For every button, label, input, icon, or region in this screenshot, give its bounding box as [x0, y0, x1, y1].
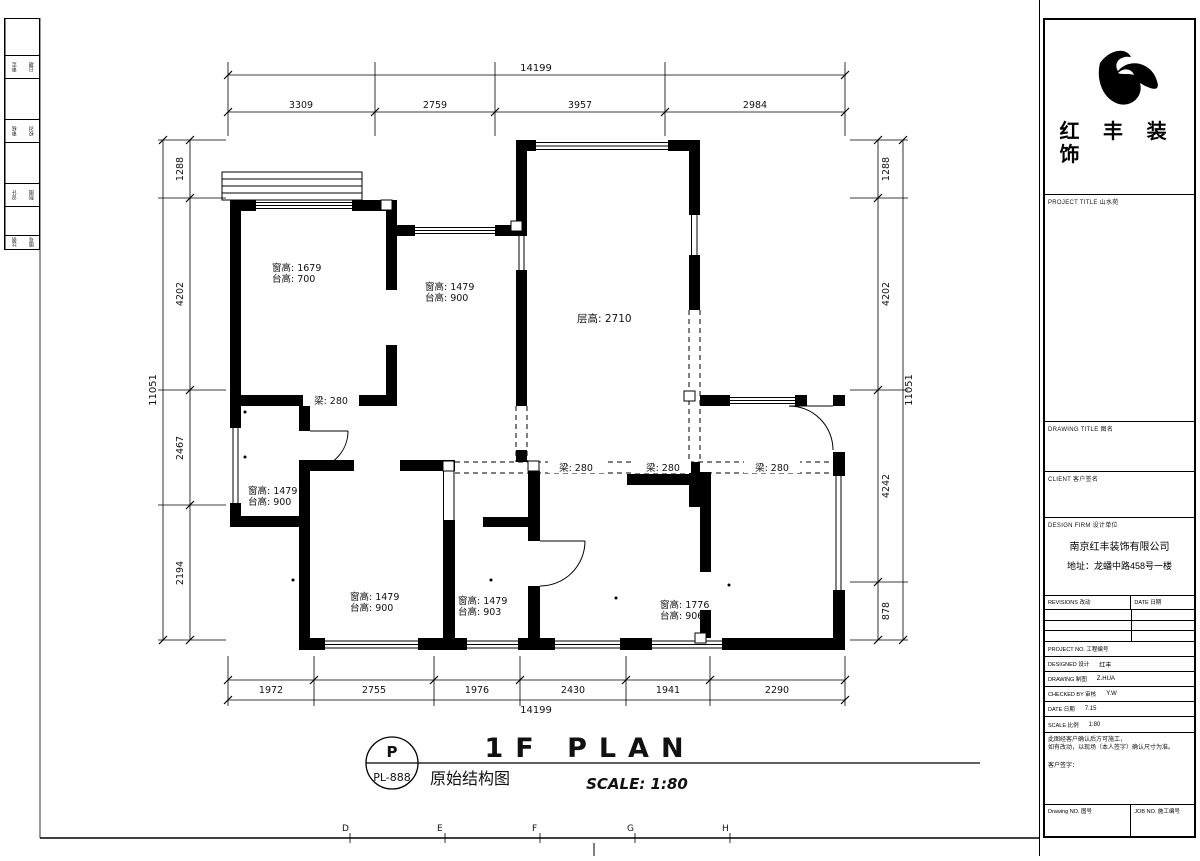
revision-row	[1045, 621, 1194, 632]
info-label: CHECKED BY 审核	[1045, 690, 1096, 698]
dim-bottom-seg: 2755	[362, 685, 386, 696]
note-line: 如有改动，以现场（本人签字）确认尺寸为准。	[1048, 744, 1191, 752]
logo-bird-icon	[1074, 47, 1166, 121]
notes-section: 此图经客户确认后方可施工， 如有改动，以现场（本人签字）确认尺寸为准。 客户签字…	[1045, 733, 1194, 805]
dim-top-seg: 2759	[423, 100, 447, 111]
title-bar: P PL-888 原始结构图 1F PLAN SCALE: 1:80	[366, 733, 980, 793]
revisions-table: REVISIONS 改动 DATE 日期	[1045, 596, 1194, 642]
info-value: 1:80	[1079, 722, 1101, 728]
strip-cell: 设计	[5, 184, 23, 206]
drawing-number-section: Drawing NO. 图号 JOB NO. 施工编号	[1045, 805, 1194, 836]
room-label: 窗高: 1776	[660, 599, 709, 611]
left-revision-strip: 审定 日期 审核 校对 设计 制图 比例 图号	[4, 18, 40, 250]
room-label: 台高: 900	[350, 602, 393, 614]
grid-marks: D E F G H	[342, 824, 730, 843]
strip-row	[5, 143, 39, 184]
sheet-divider-line	[1039, 0, 1040, 856]
column-markers	[381, 200, 706, 643]
job-no-label: JOB NO. 施工编号	[1131, 805, 1194, 836]
dim-bottom-seg: 1941	[656, 685, 680, 696]
bath-door-arc	[540, 541, 585, 586]
room-label: 台高: 900	[425, 292, 468, 304]
beam-label: 梁: 280	[646, 462, 680, 474]
info-row-designed: DESIGNED 设计 红丰	[1045, 657, 1194, 672]
grid-letter: F	[532, 824, 537, 834]
dim-left-overall: 11051	[148, 374, 159, 406]
strip-cell: 审核	[5, 120, 23, 142]
strip-cell: 图号	[23, 236, 40, 249]
strip-row	[5, 19, 39, 56]
revision-row	[1045, 610, 1194, 621]
logo-text-line2: 饰	[1060, 144, 1180, 167]
info-value: 红丰	[1089, 660, 1111, 669]
room-label: 窗高: 1479	[458, 595, 507, 607]
info-row-project-no: PROJECT NO. 工程编号	[1045, 642, 1194, 657]
info-label: SCALE 比例	[1045, 721, 1079, 729]
company-name: 南京红丰装饰有限公司	[1045, 538, 1194, 553]
client-section: CLIENT 客户签名	[1045, 472, 1194, 518]
floor-height-label: 层高: 2710	[577, 312, 632, 325]
drawing-title-label: DRAWING TITLE 图名	[1045, 422, 1194, 433]
strip-cell: 制图	[23, 184, 40, 206]
drawing-no-label: Drawing NO. 图号	[1045, 805, 1131, 836]
dim-bottom-seg: 1976	[465, 685, 489, 696]
strip-row	[5, 207, 39, 236]
dim-right-seg: 878	[881, 602, 892, 620]
title-mark-number: PL-888	[373, 771, 411, 784]
company-address: 地址：龙蟠中路458号一楼	[1045, 559, 1194, 572]
grid-letter: H	[722, 824, 729, 834]
room-labels: 窗高: 1679 台高: 700 窗高: 1479 台高: 900 窗高: 14…	[248, 262, 709, 622]
revision-row	[1045, 631, 1194, 641]
dim-right-overall: 11051	[904, 374, 915, 406]
dim-right-seg: 4242	[881, 474, 892, 498]
dim-top-seg: 2984	[743, 100, 767, 111]
room-label: 窗高: 1479	[248, 485, 297, 497]
info-row-drawing: DRAWING 制图 Z.HUA	[1045, 672, 1194, 687]
info-label: PROJECT NO. 工程编号	[1045, 645, 1108, 653]
plan-title: 1F PLAN	[484, 733, 695, 764]
strip-row: 审核 校对	[5, 120, 39, 143]
dim-left-seg: 2467	[175, 436, 186, 460]
dim-left-seg: 2194	[175, 561, 186, 585]
scale-label: SCALE: 1:80	[586, 775, 688, 793]
strip-cell: 日期	[23, 56, 40, 78]
floorplan-canvas: D E F G H	[0, 0, 1040, 856]
info-value: Y.W	[1096, 691, 1117, 697]
dim-bottom-overall: 14199	[520, 705, 552, 716]
info-rows-section: PROJECT NO. 工程编号 DESIGNED 设计 红丰 DRAWING …	[1045, 642, 1194, 733]
drawing-title-section: DRAWING TITLE 图名	[1045, 422, 1194, 472]
design-firm-label: DESIGN FIRM 设计单位	[1045, 518, 1194, 529]
client-sign-line: 客户签字：	[1048, 760, 1191, 769]
project-title-section: PROJECT TITLE 山水苑	[1045, 195, 1194, 422]
entry-door-arc	[789, 406, 833, 450]
room-label: 台高: 903	[458, 606, 501, 618]
dim-left-seg: 4202	[175, 282, 186, 306]
dim-right-seg: 1288	[881, 157, 892, 181]
room-label: 台高: 700	[272, 273, 315, 285]
info-label: DRAWING 制图	[1045, 675, 1087, 683]
revisions-label: REVISIONS 改动	[1045, 596, 1131, 609]
grid-letter: E	[437, 824, 443, 834]
strip-cell: 比例	[5, 236, 23, 249]
title-mark-letter: P	[387, 743, 398, 761]
revisions-date-label: DATE 日期	[1131, 596, 1194, 609]
dim-bottom-seg: 2290	[765, 685, 789, 696]
client-label: CLIENT 客户签名	[1045, 472, 1194, 483]
logo-text-line1: 红 丰 装	[1060, 121, 1180, 144]
dim-bottom-seg: 1972	[259, 685, 283, 696]
revisions-header: REVISIONS 改动 DATE 日期	[1045, 596, 1194, 610]
beam-label: 梁: 280	[559, 462, 593, 474]
strip-cell: 校对	[23, 120, 40, 142]
strip-row: 比例 图号	[5, 236, 39, 249]
project-title-label: PROJECT TITLE 山水苑	[1045, 195, 1194, 206]
title-block: 红 丰 装 饰 PROJECT TITLE 山水苑 DRAWING TITLE …	[1043, 18, 1196, 838]
info-value: Z.HUA	[1087, 676, 1115, 682]
grid-letter: D	[342, 824, 349, 834]
beam-label: 梁: 280	[755, 462, 789, 474]
grid-letter: G	[627, 824, 634, 834]
info-label: DESIGNED 设计	[1045, 660, 1089, 668]
dim-top-overall: 14199	[520, 63, 552, 74]
dim-left-seg: 1288	[175, 157, 186, 181]
dim-right-seg: 4202	[881, 282, 892, 306]
room-label: 台高: 900	[248, 496, 291, 508]
strip-row: 设计 制图	[5, 184, 39, 207]
room-label: 窗高: 1479	[425, 281, 474, 293]
info-row-date: DATE 日期 7.15	[1045, 702, 1194, 717]
room-label: 窗高: 1679	[272, 262, 321, 274]
note-line: 此图经客户确认后方可施工，	[1048, 736, 1191, 744]
room-label: 窗高: 1479	[350, 591, 399, 603]
info-label: DATE 日期	[1045, 705, 1075, 713]
strip-cell: 审定	[5, 56, 23, 78]
strip-row	[5, 79, 39, 120]
dim-top-seg: 3957	[568, 100, 592, 111]
strip-row: 审定 日期	[5, 56, 39, 79]
drawing-name: 原始结构图	[430, 769, 510, 788]
dim-top-seg: 3309	[289, 100, 313, 111]
design-firm-section: DESIGN FIRM 设计单位 南京红丰装饰有限公司 地址：龙蟠中路458号一…	[1045, 518, 1194, 596]
logo-section: 红 丰 装 饰	[1045, 20, 1194, 195]
info-value: 7.15	[1075, 706, 1097, 712]
info-row-scale: SCALE 比例 1:80	[1045, 717, 1194, 732]
beam-label: 梁: 280	[314, 395, 348, 407]
room-label: 台高: 906	[660, 610, 703, 622]
dim-bottom-seg: 2430	[561, 685, 585, 696]
survey-dots	[244, 411, 731, 600]
info-row-checked: CHECKED BY 审核 Y.W	[1045, 687, 1194, 702]
door-arcs	[310, 406, 833, 586]
